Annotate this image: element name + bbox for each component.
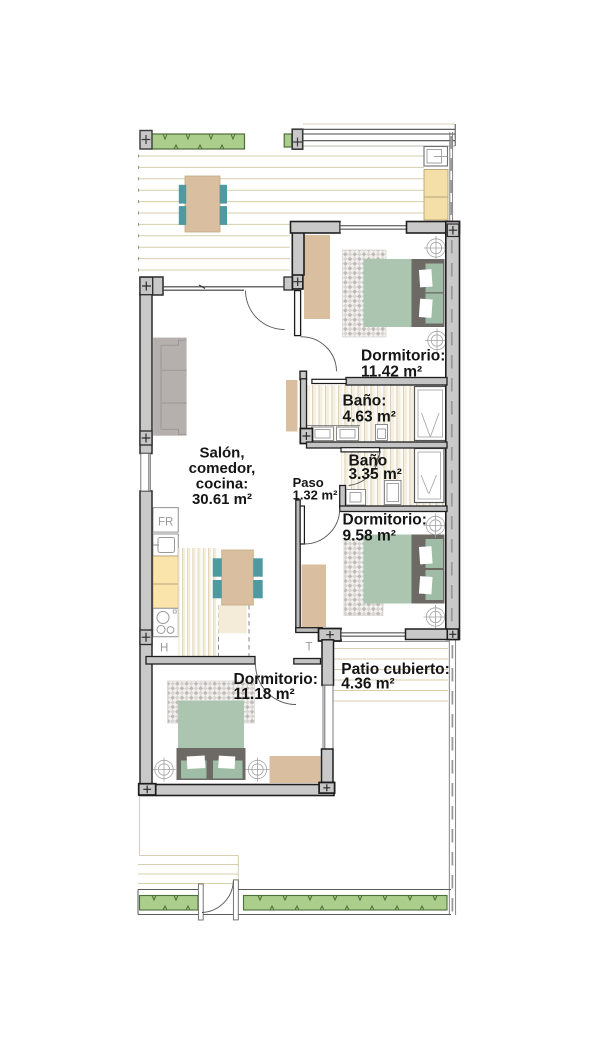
svg-text:11.18 m²: 11.18 m² (234, 686, 295, 703)
svg-text:4.36 m²: 4.36 m² (341, 676, 394, 693)
svg-text:1.32 m²: 1.32 m² (293, 488, 338, 503)
svg-text:comedor,: comedor, (189, 460, 256, 477)
svg-text:FR: FR (158, 517, 173, 529)
svg-text:Baño:: Baño: (343, 393, 387, 410)
svg-text:Salón,: Salón, (199, 445, 244, 462)
svg-text:4.63 m²: 4.63 m² (343, 409, 396, 426)
svg-text:11.42 m²: 11.42 m² (361, 364, 422, 381)
svg-text:9.58 m²: 9.58 m² (343, 528, 396, 545)
svg-text:3.35 m²: 3.35 m² (349, 466, 402, 483)
svg-text:T: T (306, 642, 313, 654)
svg-text:cocina:: cocina: (196, 476, 249, 493)
svg-text:Dormitorio:: Dormitorio: (343, 512, 427, 529)
svg-text:H: H (160, 643, 168, 655)
svg-text:30.61 m²: 30.61 m² (192, 491, 252, 508)
svg-text:Dormitorio:: Dormitorio: (361, 348, 445, 365)
